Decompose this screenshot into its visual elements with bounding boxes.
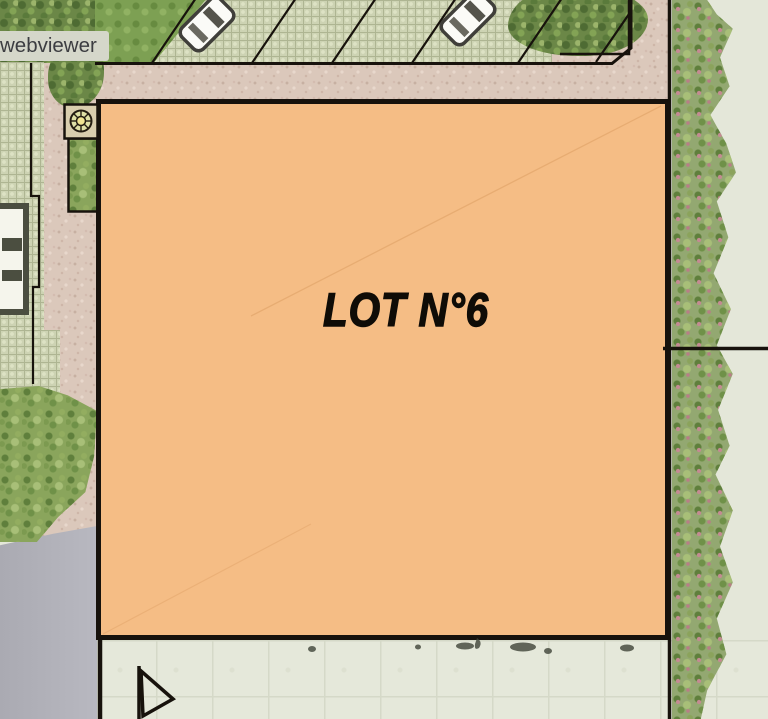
concrete-apron-bottom [100, 640, 768, 719]
hedge-right-strip [672, 0, 736, 719]
lot-survey-lines [101, 104, 665, 635]
lot-label: LOT N°6 [320, 280, 492, 338]
road-gray [0, 526, 97, 719]
site-plan-canvas: LOT N°6 [0, 0, 768, 719]
hedge-planter-strip [68, 138, 98, 212]
lot-6-region[interactable]: LOT N°6 [96, 99, 670, 640]
viewer-badge-label: webviewer [0, 34, 97, 57]
footpath-horizontal [28, 63, 668, 101]
viewer-badge: webviewer [0, 31, 109, 61]
